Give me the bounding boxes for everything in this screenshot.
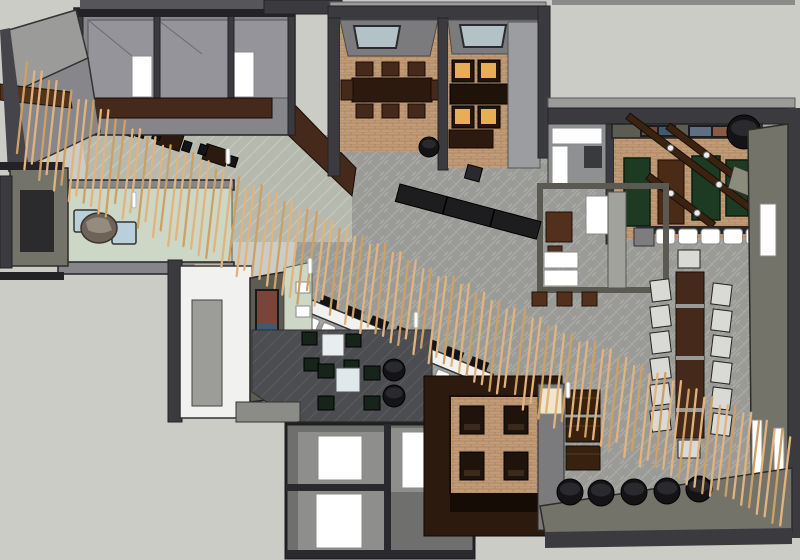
communal-chair (711, 283, 732, 306)
sofa-cushion (544, 270, 578, 286)
sofa-cushion (544, 252, 578, 268)
floorplan-render (0, 0, 800, 560)
bench (296, 306, 310, 317)
cylinder-top (689, 480, 709, 493)
cylinder-top (657, 482, 677, 495)
window (132, 56, 152, 97)
communal-chair (711, 361, 732, 384)
pendant-light (226, 148, 230, 164)
dining-table-2 (450, 84, 508, 104)
cylinder-top (591, 484, 611, 497)
bar-pillar (634, 228, 654, 246)
bench (608, 192, 626, 288)
communal-table (676, 272, 704, 438)
top-edge (552, 0, 795, 5)
room-b-floor (158, 20, 228, 98)
bar-stool (701, 229, 720, 244)
dining-table-1 (352, 78, 432, 102)
desk (546, 212, 572, 242)
cylinder-top (385, 388, 402, 399)
window (234, 52, 254, 97)
nook-bench (552, 128, 602, 144)
room-2-side-strip (508, 22, 540, 168)
pendant-light (414, 312, 418, 328)
cylinder-top (385, 362, 402, 373)
pendant-light (308, 258, 312, 274)
bar-stool (724, 229, 743, 244)
cylinder-top (624, 483, 644, 496)
communal-chair (650, 357, 671, 380)
corridor-wall (192, 300, 222, 406)
communal-chair (711, 413, 732, 436)
green-booth (624, 158, 650, 226)
communal-chair (650, 331, 671, 354)
window (760, 204, 776, 256)
communal-chair (711, 309, 732, 332)
entry-doorway (20, 190, 54, 252)
fixture (316, 494, 362, 548)
pendant-light (132, 192, 136, 208)
sideboard (449, 130, 493, 148)
skylight (460, 25, 506, 47)
pendant-light (566, 382, 570, 398)
nook-bench (552, 146, 568, 186)
skylight (354, 26, 400, 48)
sofa-nook (548, 124, 606, 188)
cube-table (322, 334, 344, 356)
cube-table (336, 368, 360, 392)
communal-chair (711, 387, 732, 410)
pit-south-step (450, 494, 550, 512)
fixture (318, 436, 362, 480)
bar-stool (679, 229, 698, 244)
communal-chair (650, 305, 671, 328)
cylinder-top (560, 483, 580, 496)
nook-table (584, 146, 602, 168)
stool (532, 292, 547, 306)
communal-chair (711, 335, 732, 358)
stool (557, 292, 572, 306)
stool (582, 292, 597, 306)
step-platform (236, 402, 300, 422)
end-chair (678, 250, 700, 268)
communal-chair (650, 383, 671, 406)
communal-chair (650, 279, 671, 302)
roof-edge (80, 0, 270, 9)
